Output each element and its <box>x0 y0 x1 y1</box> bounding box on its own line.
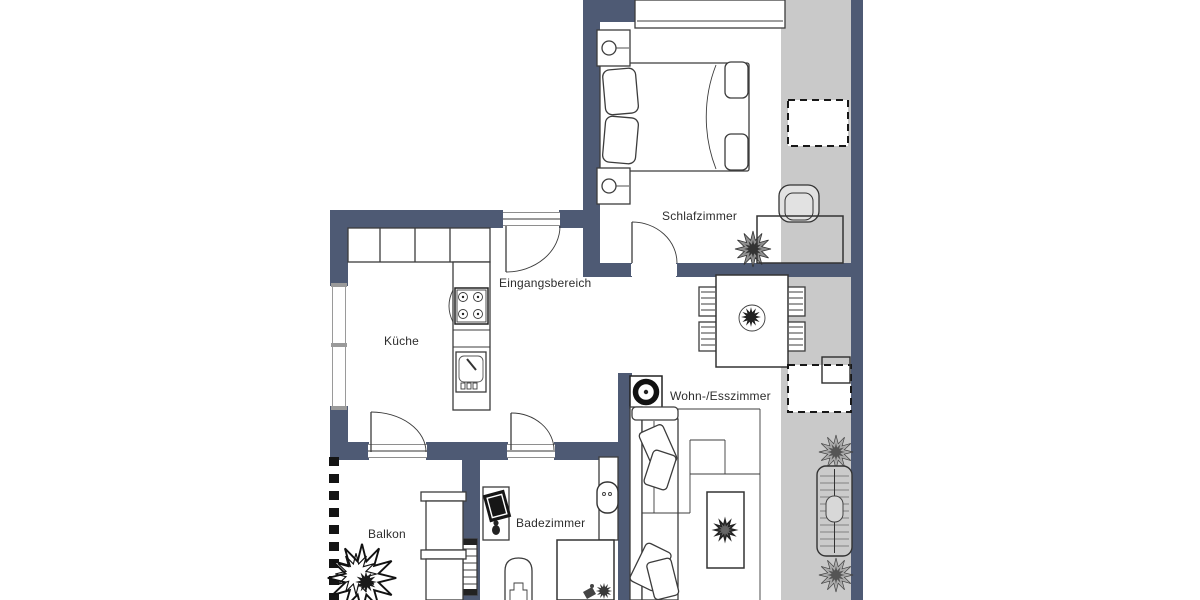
roof-window-living <box>788 357 851 412</box>
room-label-schlafzimmer: Schlafzimmer <box>662 209 737 223</box>
kitchen-sink <box>456 352 486 392</box>
nightstand-lamp-top <box>597 30 630 66</box>
coffee-table <box>707 492 744 568</box>
nightstand-lamp-bottom <box>597 168 630 204</box>
room-label-wohn-esszimmer: Wohn-/Esszimmer <box>670 389 771 403</box>
shower <box>557 540 614 600</box>
washer-on-stand <box>483 487 511 540</box>
furniture-layer <box>0 0 1200 600</box>
terrace-plant-top <box>819 435 853 469</box>
dining-chair <box>699 322 717 351</box>
desk <box>757 216 843 263</box>
room-label-kueche: Küche <box>384 334 419 348</box>
bath-door-swing <box>511 413 554 450</box>
bedroom-plant <box>735 231 771 267</box>
sun-lounger <box>817 466 852 556</box>
washing-machine <box>630 376 662 408</box>
floor-plan-canvas: Schlafzimmer Eingangsbereich Küche Wohn-… <box>0 0 1200 600</box>
bedroom-door-swing <box>632 222 677 263</box>
dining-chair <box>699 287 717 316</box>
dining-chair <box>787 287 805 316</box>
stove <box>455 288 488 324</box>
dining-chair <box>787 322 805 351</box>
washbasin <box>597 457 618 540</box>
balcony-plant <box>328 544 396 600</box>
balcony-shelf-unit <box>421 492 466 600</box>
double-bed <box>600 62 749 171</box>
kitchen-balcony-door-swing <box>371 412 426 452</box>
wardrobe <box>635 0 785 28</box>
room-label-balkon: Balkon <box>368 527 406 541</box>
sofa <box>629 407 680 600</box>
room-label-eingangsbereich: Eingangsbereich <box>499 276 591 290</box>
roof-window-bedroom <box>788 100 848 146</box>
terrace-plant-bottom <box>819 558 853 592</box>
entrance-door-swing <box>506 226 560 272</box>
room-label-badezimmer: Badezimmer <box>516 516 585 530</box>
radiator <box>463 539 477 595</box>
toilet <box>505 558 532 600</box>
